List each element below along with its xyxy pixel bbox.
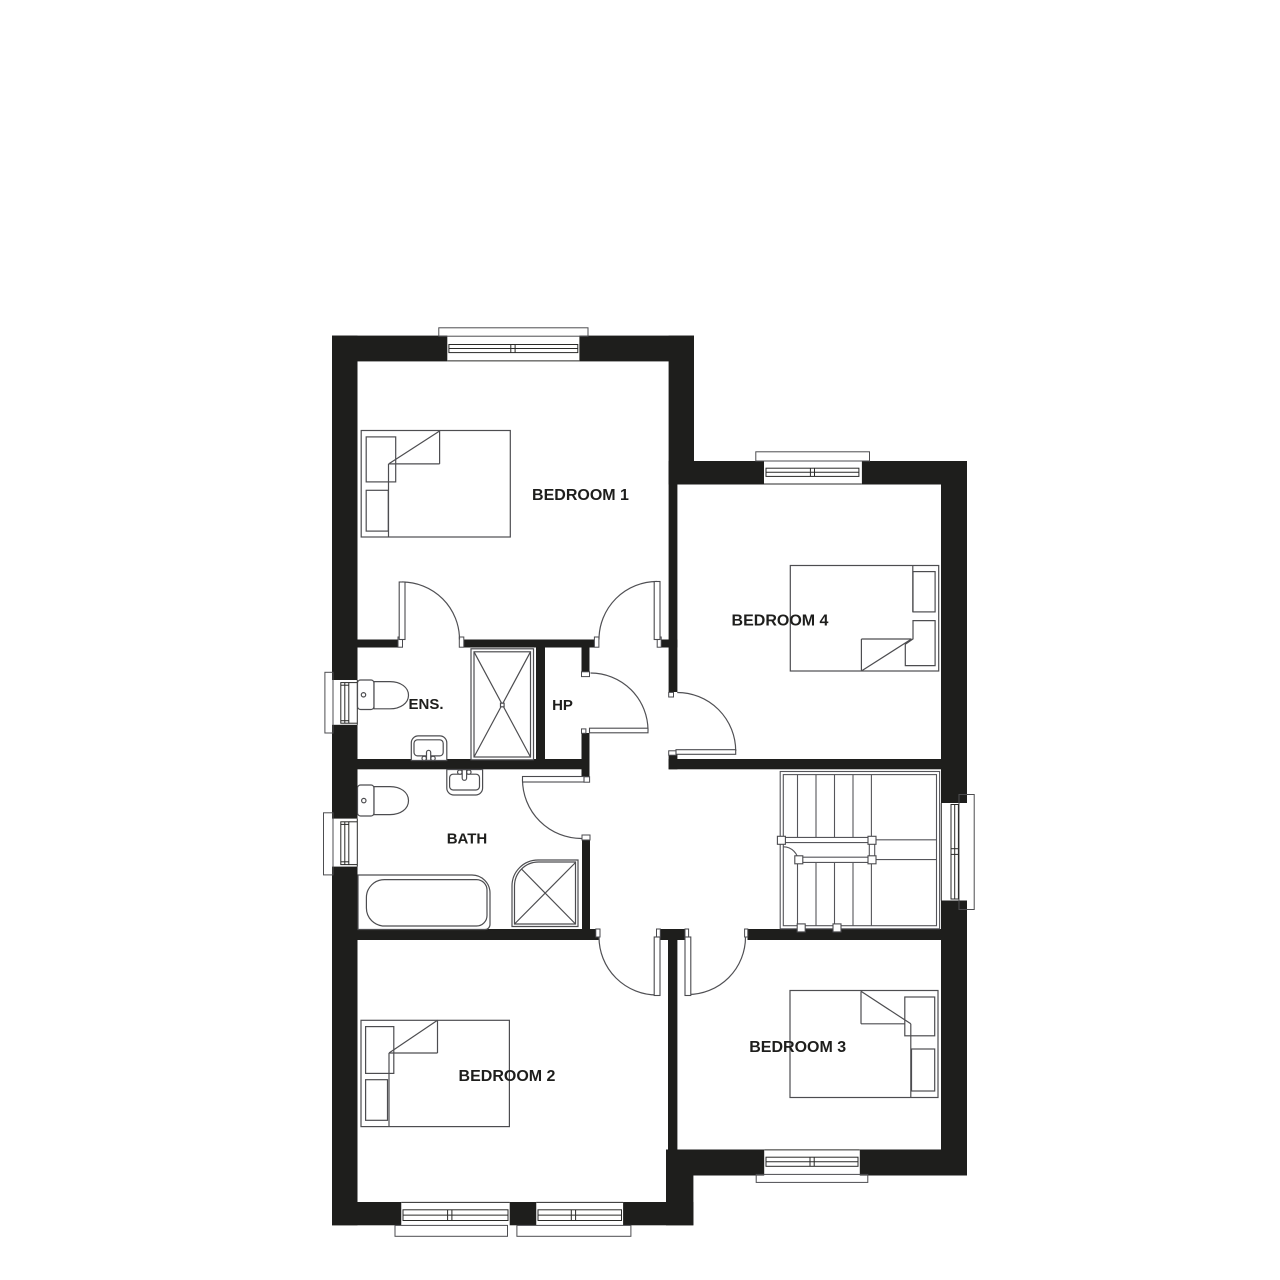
svg-text:BEDROOM 1: BEDROOM 1 xyxy=(532,487,629,504)
svg-text:ENS.: ENS. xyxy=(408,696,443,713)
svg-text:HP: HP xyxy=(552,697,573,714)
svg-text:BEDROOM 4: BEDROOM 4 xyxy=(732,612,829,629)
svg-text:BEDROOM 3: BEDROOM 3 xyxy=(749,1039,846,1056)
svg-text:BATH: BATH xyxy=(447,831,488,848)
svg-text:BEDROOM 2: BEDROOM 2 xyxy=(459,1068,556,1085)
